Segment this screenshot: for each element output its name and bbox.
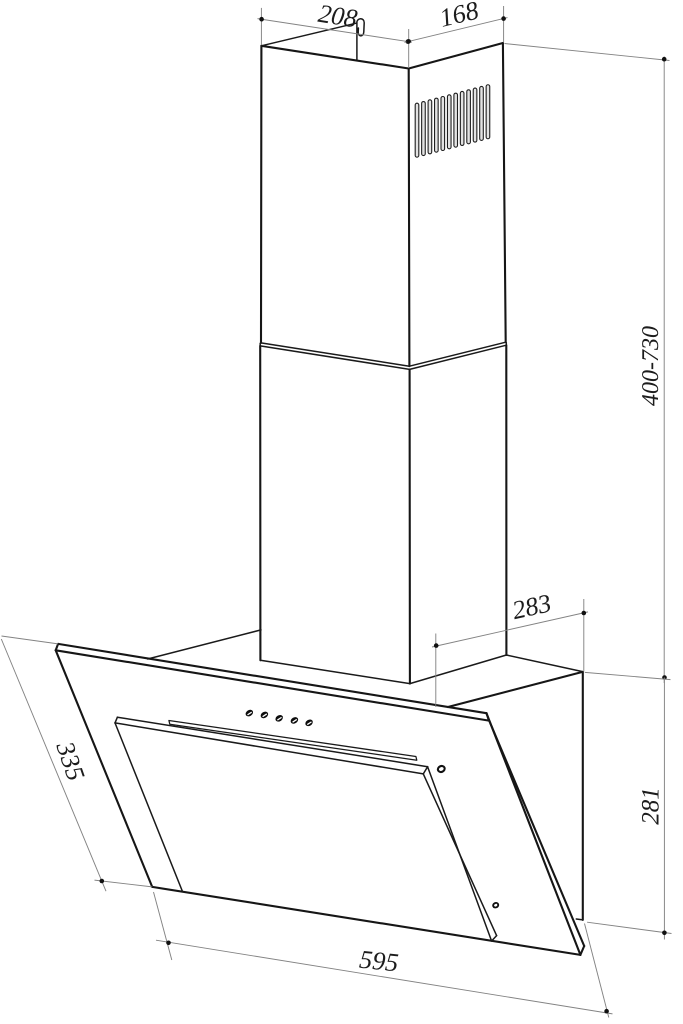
svg-text:400-730: 400-730	[638, 326, 664, 406]
svg-text:208: 208	[316, 0, 359, 33]
svg-text:281: 281	[638, 787, 665, 825]
svg-text:595: 595	[358, 945, 400, 978]
